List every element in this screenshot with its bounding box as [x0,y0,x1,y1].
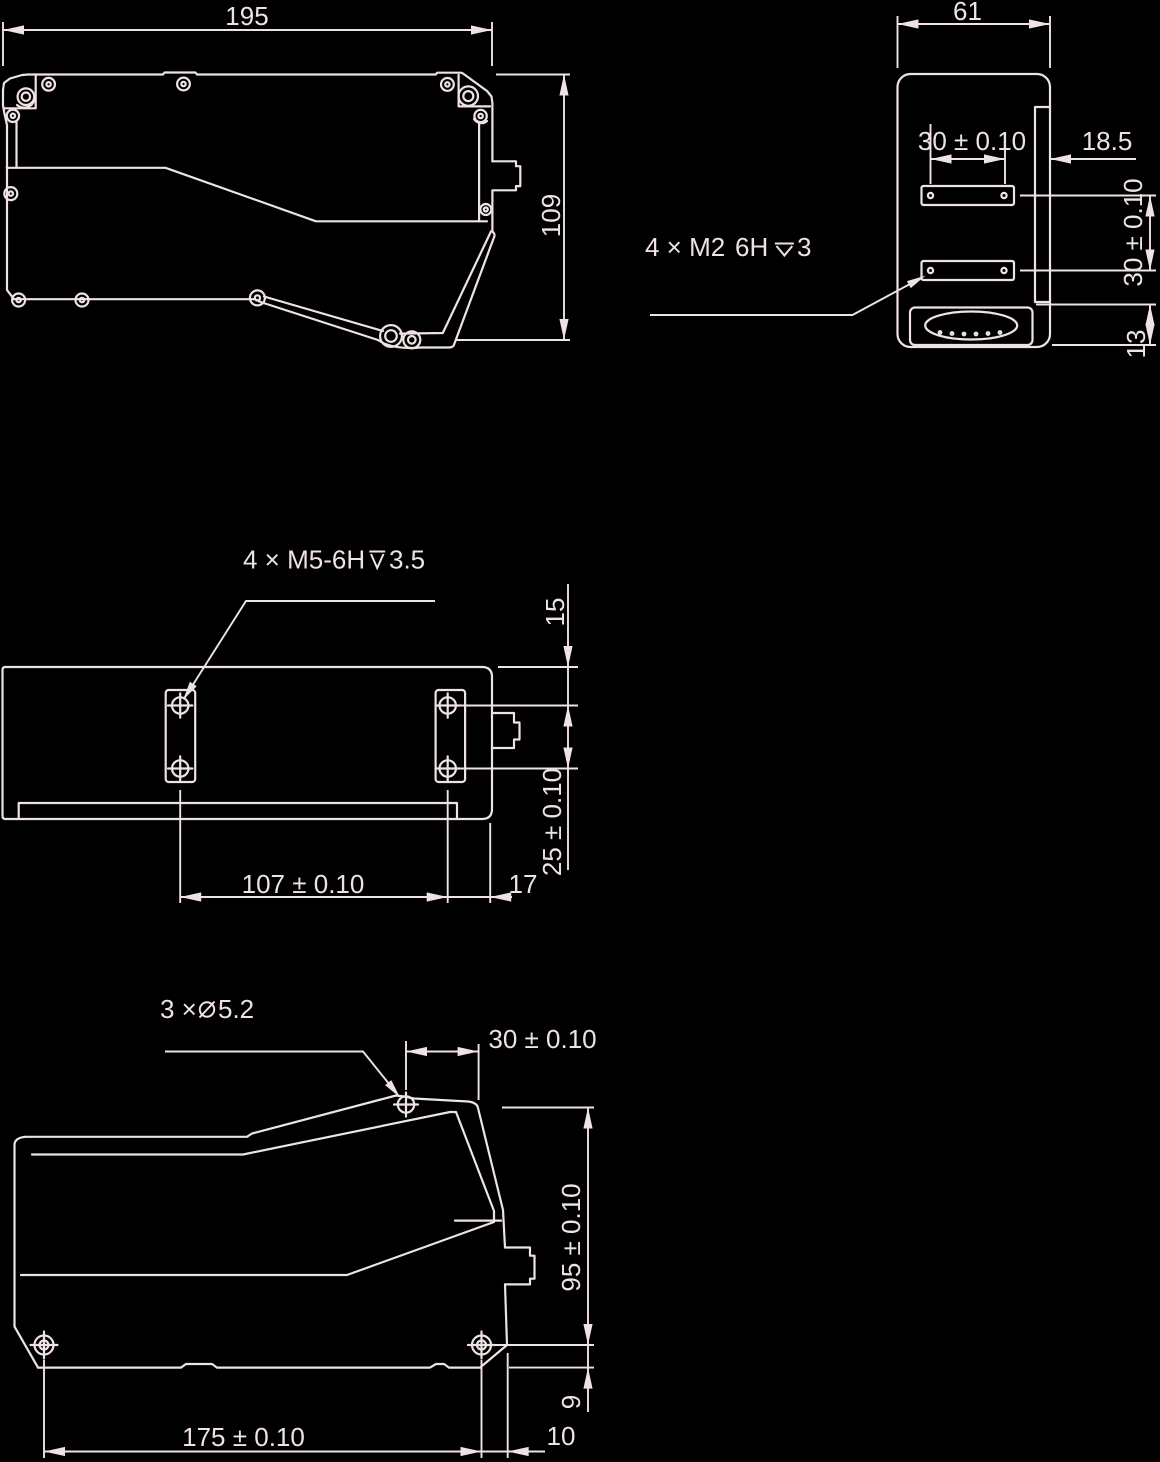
svg-text:6H: 6H [735,232,768,262]
svg-text:3: 3 [797,232,811,262]
svg-text:107 ± 0.10: 107 ± 0.10 [242,869,365,899]
svg-text:17: 17 [509,869,538,899]
svg-text:4 × M2: 4 × M2 [645,232,725,262]
svg-text:10: 10 [547,1421,576,1451]
svg-text:4 × M5-6H: 4 × M5-6H [243,545,365,575]
svg-text:15: 15 [540,598,570,627]
svg-text:175 ± 0.10: 175 ± 0.10 [182,1422,305,1452]
svg-text:61: 61 [953,0,982,26]
svg-text:95 ± 0.10: 95 ± 0.10 [556,1183,586,1291]
svg-text:30 ± 0.10: 30 ± 0.10 [488,1024,596,1054]
svg-text:9: 9 [556,1395,586,1409]
svg-text:30 ± 0.10: 30 ± 0.10 [918,126,1026,156]
svg-text:13: 13 [1121,330,1151,359]
svg-text:3 ×: 3 × [160,994,197,1024]
svg-text:25 ± 0.10: 25 ± 0.10 [537,768,567,876]
svg-text:3.5: 3.5 [389,545,425,575]
svg-text:5.2: 5.2 [218,994,254,1024]
svg-text:195: 195 [225,1,268,31]
svg-text:30 ± 0.10: 30 ± 0.10 [1118,178,1148,286]
svg-text:18.5: 18.5 [1082,126,1133,156]
svg-text:109: 109 [536,194,566,237]
